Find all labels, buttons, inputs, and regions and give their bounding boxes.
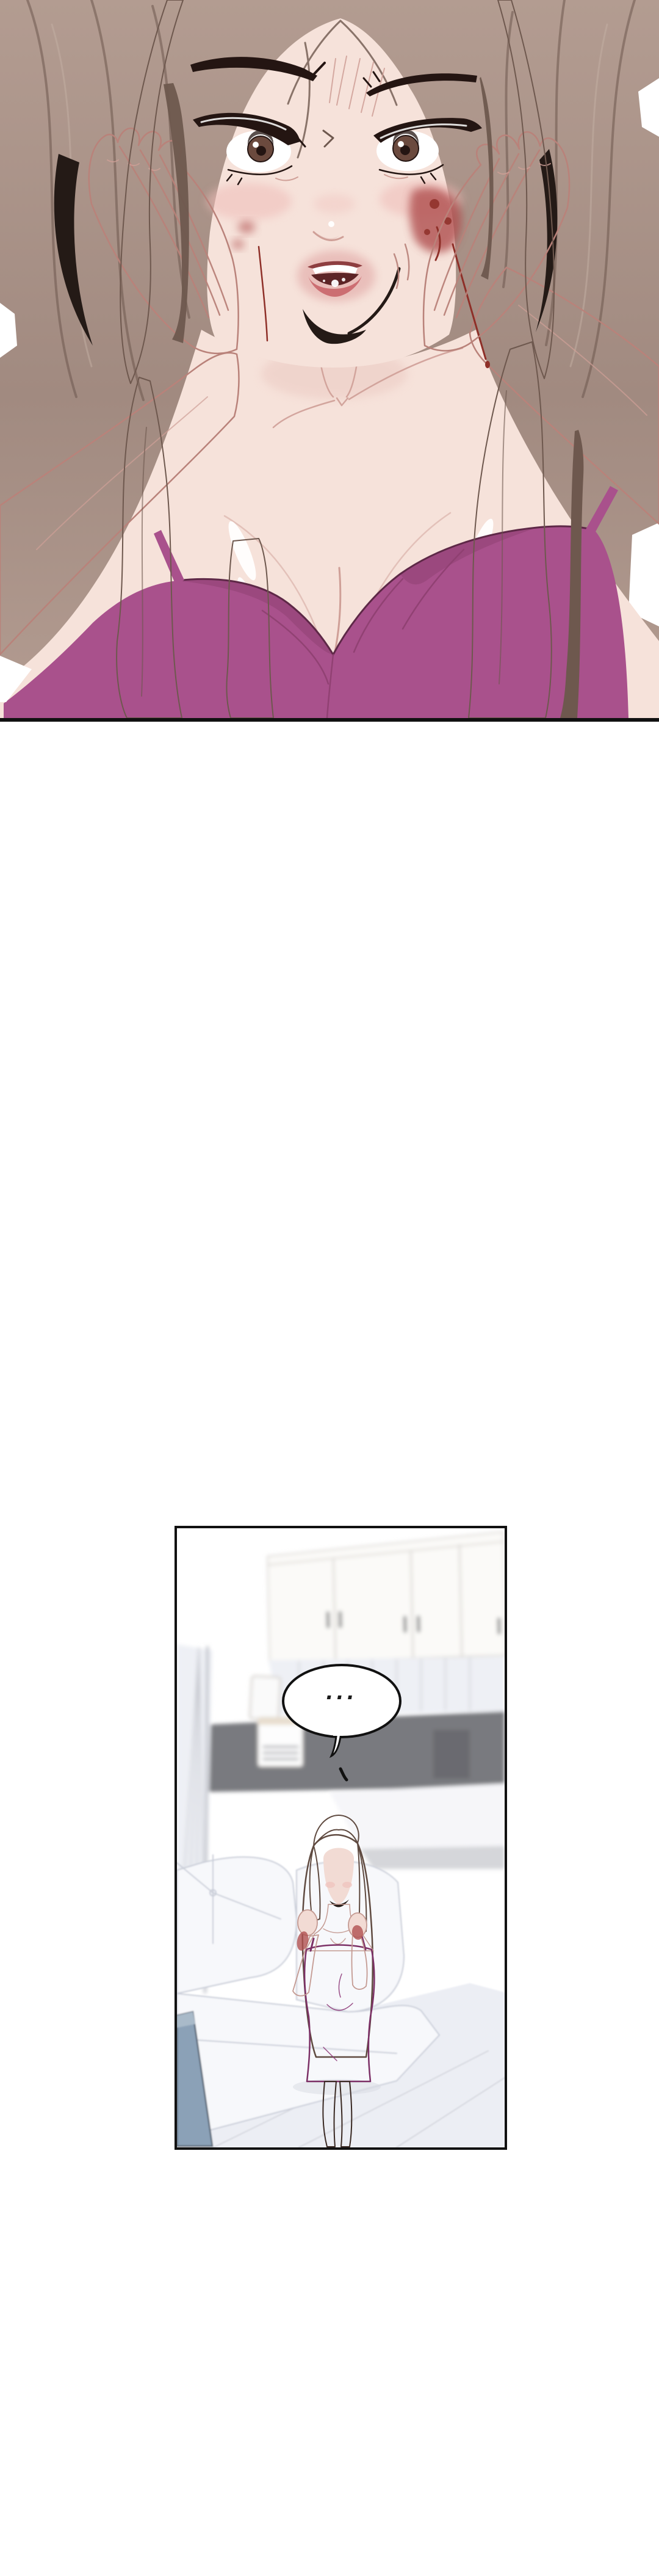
speech-bubble-text: ... [326,1681,357,1704]
webtoon-page: ... [0,0,659,2576]
panel-room: ... [175,1526,507,2150]
mouth [297,250,375,302]
vanity-mirror [250,1676,281,1720]
closeup-illustration [0,0,659,718]
room-illustration: ... [177,1528,505,2147]
panel-closeup [0,0,659,722]
